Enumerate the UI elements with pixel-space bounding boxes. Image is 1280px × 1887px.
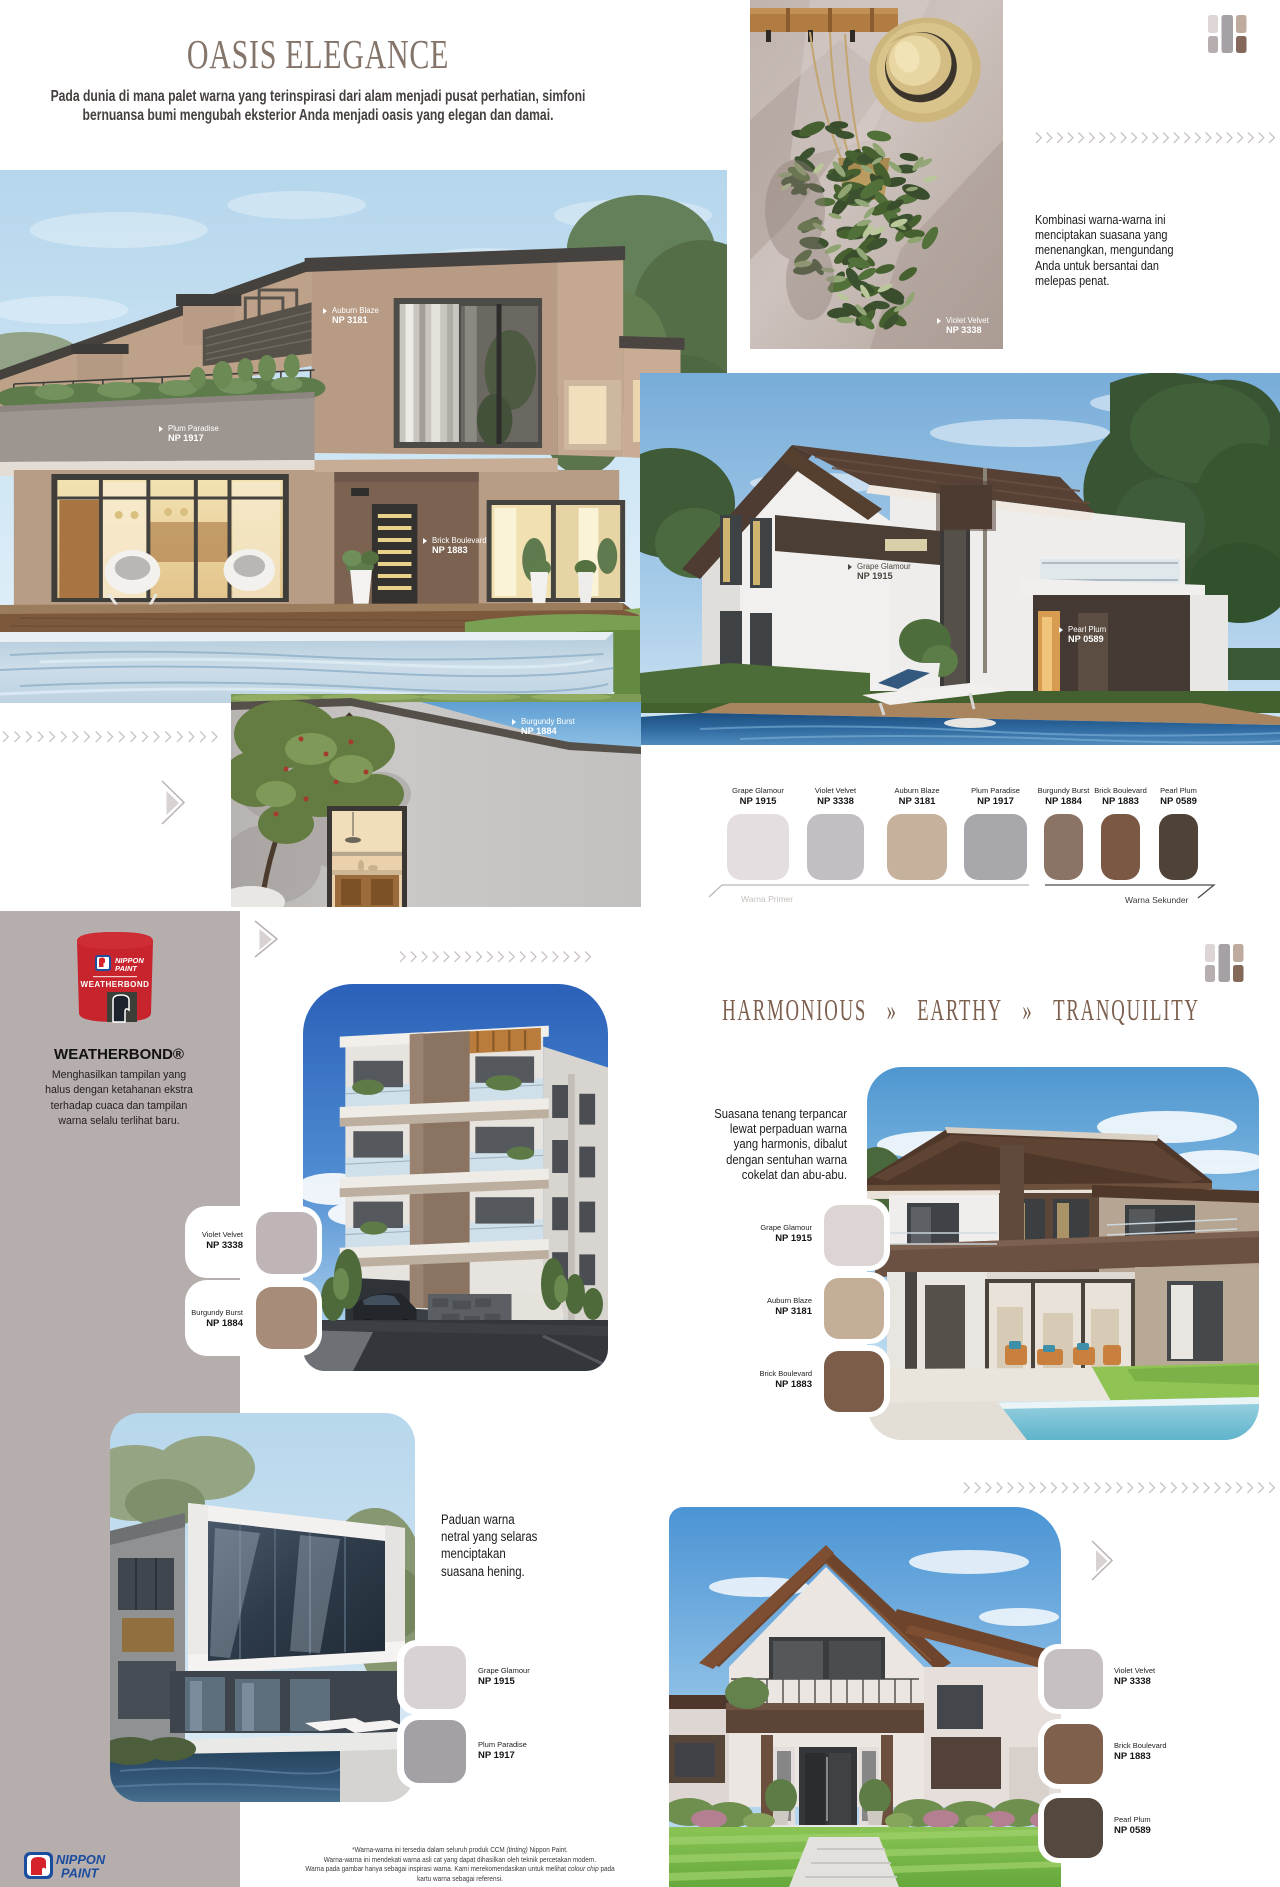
svg-text:PAINT: PAINT: [61, 1866, 100, 1881]
svg-text:PAINT: PAINT: [115, 964, 138, 973]
svg-text:WEATHERBOND: WEATHERBOND: [81, 980, 150, 989]
